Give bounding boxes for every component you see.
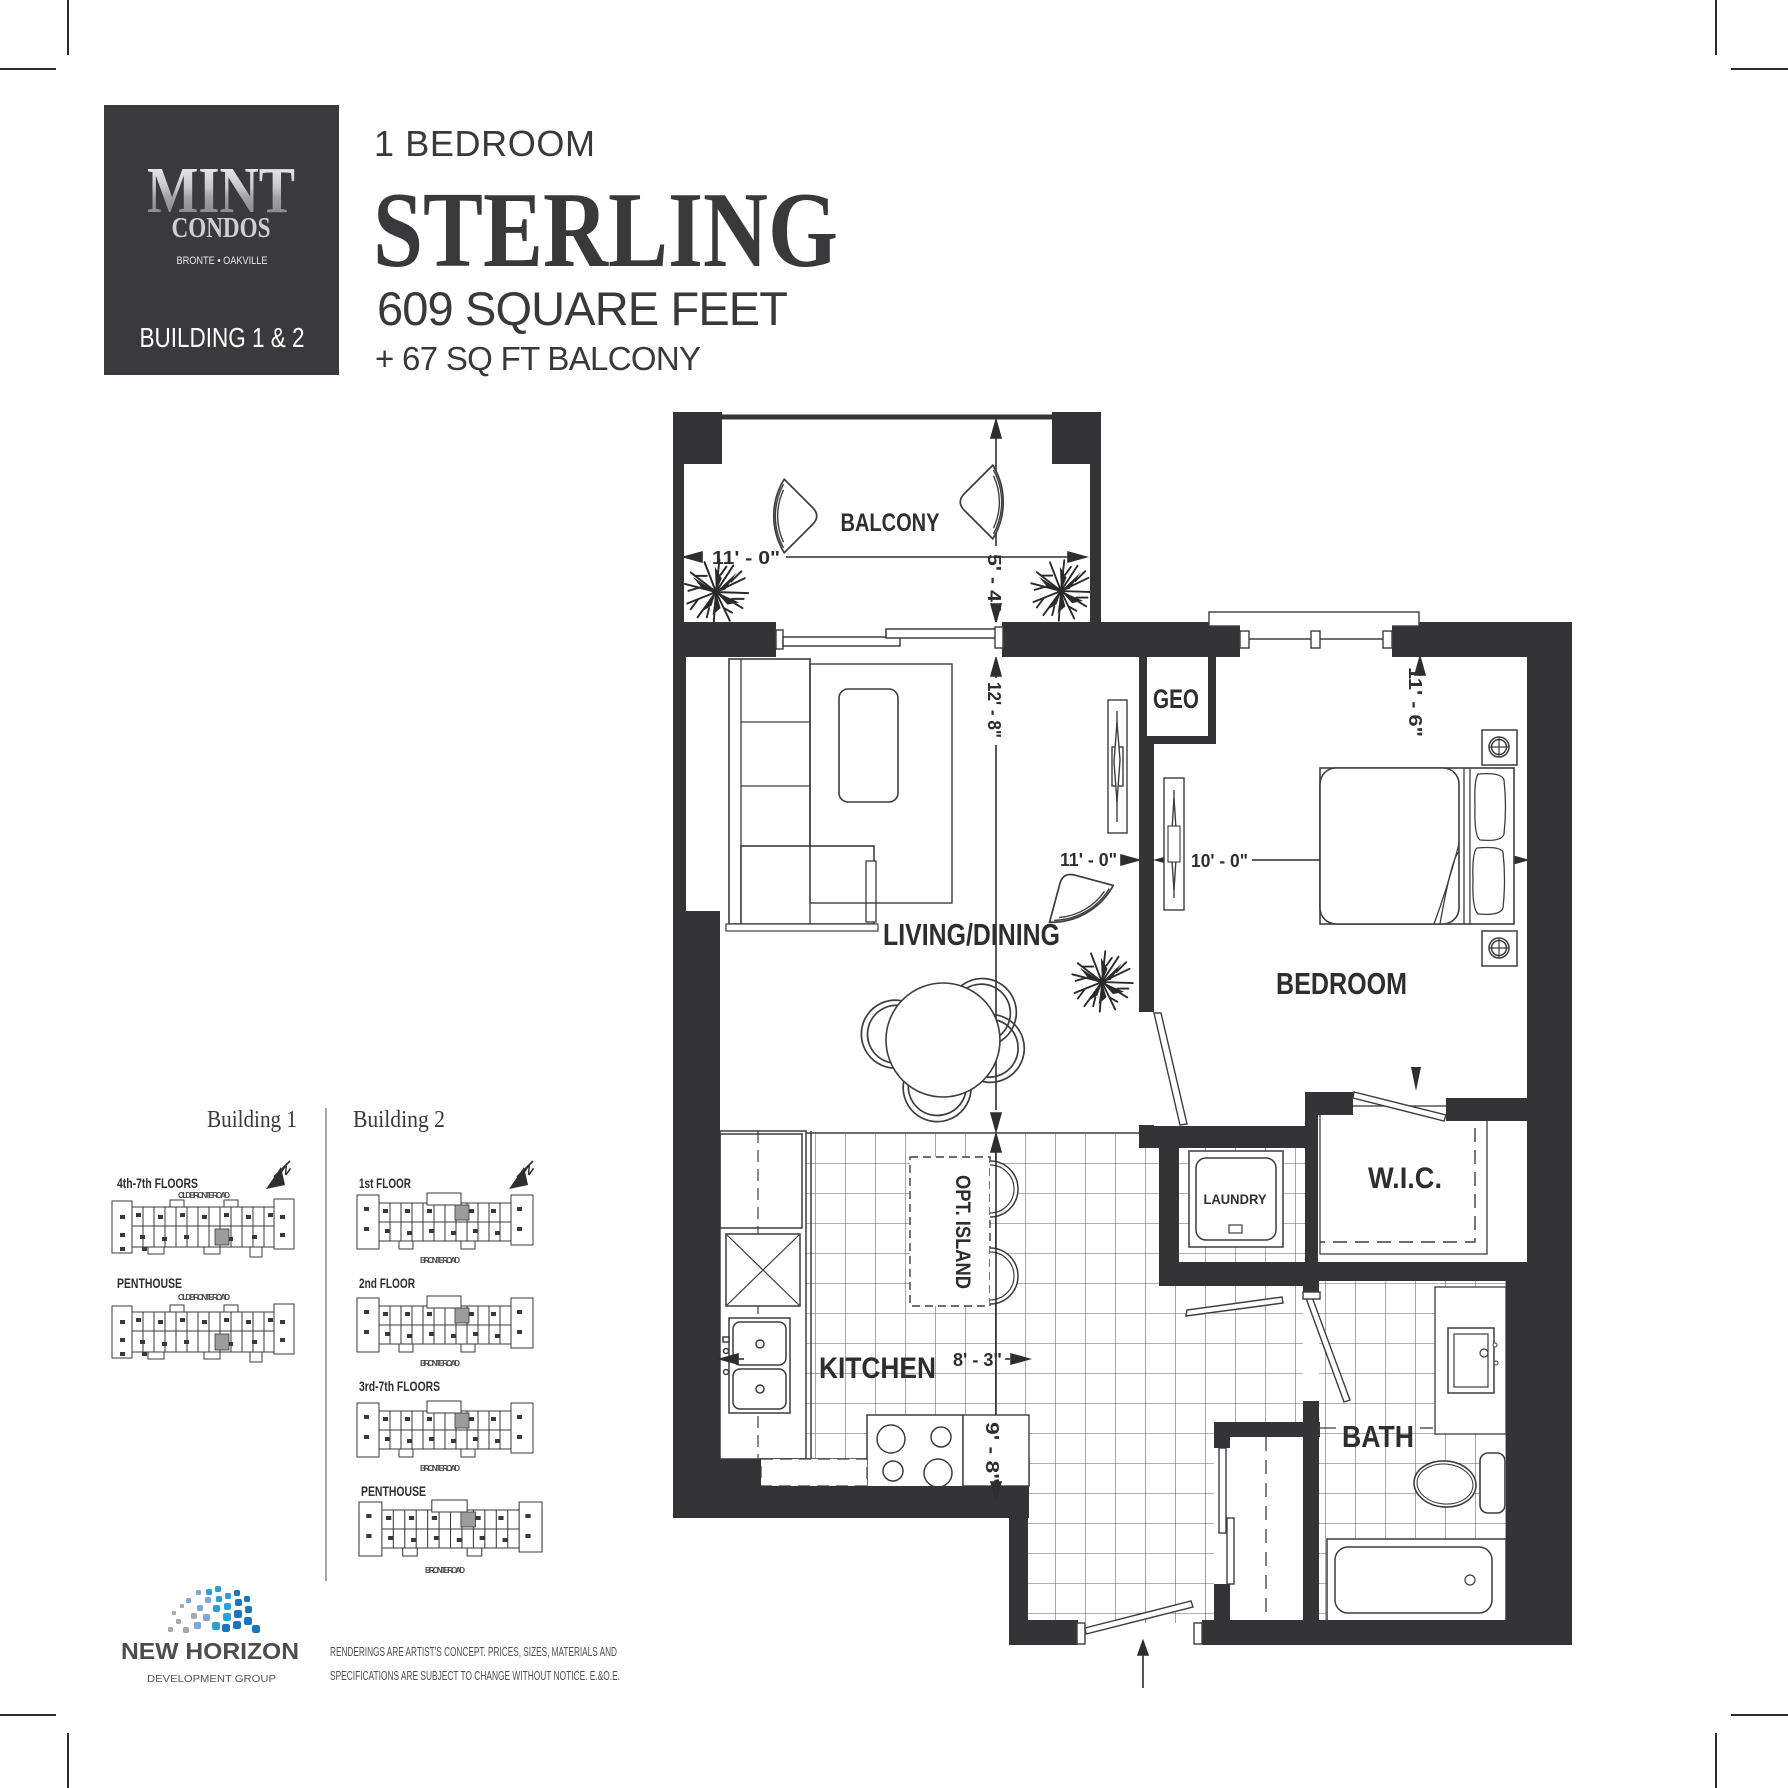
svg-text:8' - 3": 8' - 3" <box>953 1350 1002 1370</box>
svg-text:BRONTE ROAD: BRONTE ROAD <box>420 1256 460 1265</box>
svg-text:12' - 8": 12' - 8" <box>984 682 1004 738</box>
svg-text:Building 2: Building 2 <box>353 1107 445 1133</box>
svg-text:PENTHOUSE: PENTHOUSE <box>117 1275 182 1291</box>
svg-text:BRONTE ROAD: BRONTE ROAD <box>425 1566 465 1575</box>
svg-text:STERLING: STERLING <box>373 171 838 290</box>
svg-text:BATH: BATH <box>1342 1419 1414 1454</box>
svg-text:W.I.C.: W.I.C. <box>1368 1162 1442 1195</box>
svg-text:11' - 0": 11' - 0" <box>712 548 780 568</box>
svg-text:OPT. ISLAND: OPT. ISLAND <box>951 1175 974 1289</box>
svg-text:BRONTE ROAD: BRONTE ROAD <box>420 1464 460 1473</box>
svg-text:BALCONY: BALCONY <box>841 509 940 537</box>
svg-text:BUILDING 1 & 2: BUILDING 1 & 2 <box>140 322 305 353</box>
svg-text:11' - 0": 11' - 0" <box>1060 850 1117 870</box>
svg-text:BEDROOM: BEDROOM <box>1276 966 1407 1001</box>
svg-text:3rd-7th FLOORS: 3rd-7th FLOORS <box>359 1378 440 1394</box>
svg-text:SPECIFICATIONS ARE SUBJECT TO: SPECIFICATIONS ARE SUBJECT TO CHANGE WIT… <box>330 1669 620 1683</box>
svg-text:1st FLOOR: 1st FLOOR <box>359 1175 411 1191</box>
svg-text:KITCHEN: KITCHEN <box>819 1352 936 1385</box>
svg-text:OLD BRONTE ROAD: OLD BRONTE ROAD <box>178 1293 230 1302</box>
svg-text:609 SQUARE FEET: 609 SQUARE FEET <box>377 282 788 335</box>
svg-text:+ 67 SQ FT BALCONY: + 67 SQ FT BALCONY <box>375 340 701 377</box>
svg-text:11' - 6": 11' - 6" <box>1405 667 1425 737</box>
svg-text:LIVING/DINING: LIVING/DINING <box>883 917 1060 952</box>
svg-text:1 BEDROOM: 1 BEDROOM <box>374 123 595 164</box>
svg-text:LAUNDRY: LAUNDRY <box>1204 1192 1267 1207</box>
svg-text:PENTHOUSE: PENTHOUSE <box>361 1483 426 1499</box>
svg-text:BRONTE ROAD: BRONTE ROAD <box>420 1359 460 1368</box>
svg-text:GEO: GEO <box>1153 684 1199 714</box>
svg-text:10' - 0": 10' - 0" <box>1191 851 1248 871</box>
svg-text:DEVELOPMENT GROUP: DEVELOPMENT GROUP <box>147 1673 276 1685</box>
svg-text:RENDERINGS ARE ARTIST'S CONCEP: RENDERINGS ARE ARTIST'S CONCEPT. PRICES,… <box>330 1645 617 1659</box>
svg-text:CONDOS: CONDOS <box>172 212 271 244</box>
svg-text:2nd FLOOR: 2nd FLOOR <box>359 1275 415 1291</box>
svg-text:4th-7th FLOORS: 4th-7th FLOORS <box>117 1175 198 1191</box>
svg-text:NEW HORIZON: NEW HORIZON <box>121 1638 299 1664</box>
svg-text:Building 1: Building 1 <box>207 1107 297 1133</box>
svg-text:BRONTE • OAKVILLE: BRONTE • OAKVILLE <box>177 255 268 267</box>
svg-text:5' - 4": 5' - 4" <box>984 554 1004 612</box>
svg-text:9' - 8": 9' - 8" <box>982 1422 1002 1484</box>
svg-text:OLD BRONTE ROAD: OLD BRONTE ROAD <box>178 1191 230 1200</box>
